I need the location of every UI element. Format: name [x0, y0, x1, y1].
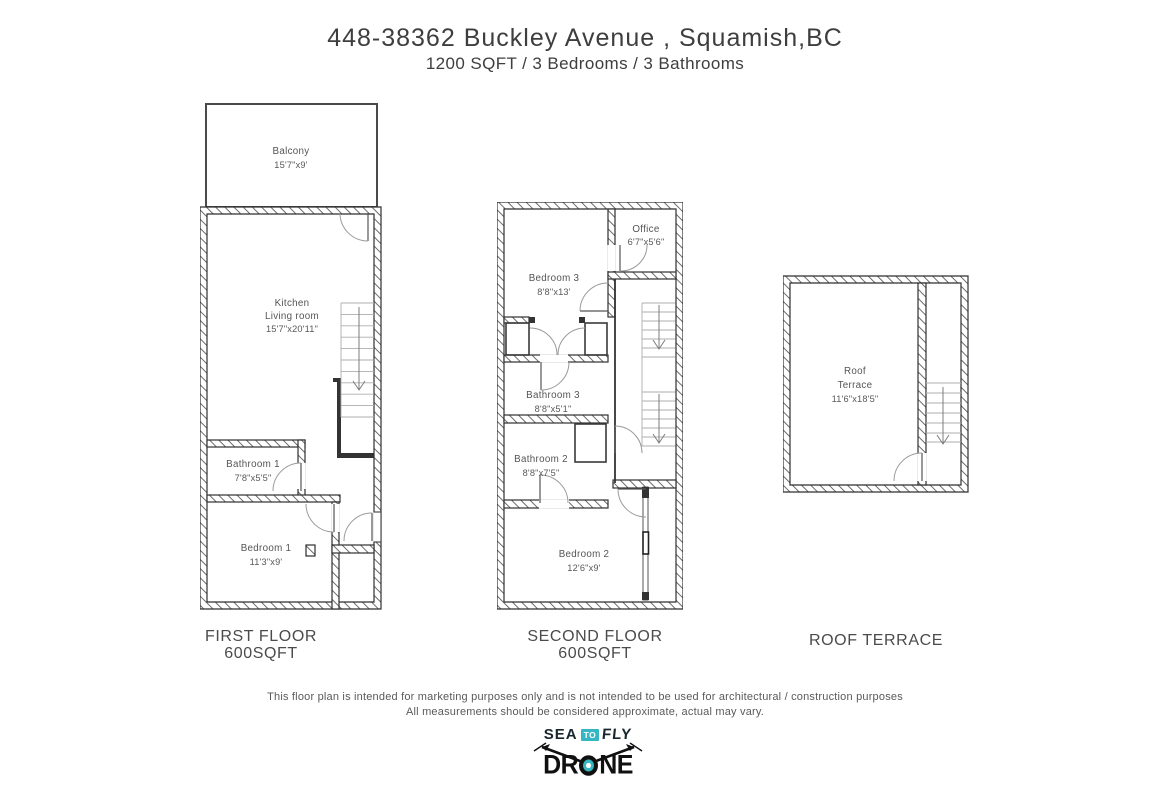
first-floor-stairs-icon [341, 303, 374, 417]
terrace-dims: 11'6"x18'5" [832, 394, 879, 404]
page-title: 448-38362 Buckley Avenue , Squamish,BC [0, 24, 1170, 53]
bedroom1-dims: 11'3"x9' [250, 557, 283, 567]
window-icon [643, 532, 649, 554]
first-floor-caption-line2: 600SQFT [161, 645, 361, 662]
office-dims: 6'7"x5'6" [628, 237, 665, 247]
second-floor-walls [497, 202, 683, 609]
first-floor-doors [273, 213, 372, 541]
bedroom1-label: Bedroom 1 [241, 543, 292, 554]
second-floor-caption: SECOND FLOOR 600SQFT [495, 628, 695, 662]
roof-stairs-icon [926, 383, 961, 444]
page-subtitle: 1200 SQFT / 3 Bedrooms / 3 Bathrooms [0, 54, 1170, 74]
bathroom1-label: Bathroom 1 [226, 459, 280, 470]
bathroom1-dims: 7'8"x5'5" [235, 473, 272, 483]
sea-to-fly-drone-logo: SEA TO FLY DR NE [523, 726, 653, 780]
floor-plan-page: 448-38362 Buckley Avenue , Squamish,BC 1… [0, 0, 1170, 785]
bedroom2-label: Bedroom 2 [559, 549, 610, 560]
living-room-label: Living room [265, 311, 319, 322]
first-floor-caption: FIRST FLOOR 600SQFT [161, 628, 361, 662]
logo-to-badge: TO [581, 729, 600, 741]
stairs-down-arrow-icon [937, 387, 949, 444]
roof-terrace-walls [783, 276, 968, 492]
bedroom2-dims: 12'6"x9' [567, 563, 600, 573]
disclaimer-line2: All measurements should be considered ap… [0, 705, 1170, 720]
logo-drone-row: DR NE [523, 750, 653, 781]
bedroom3-dims: 8'8"x13' [537, 287, 570, 297]
second-floor-stairs-icon [642, 303, 676, 446]
disclaimer-line1: This floor plan is intended for marketin… [0, 690, 1170, 705]
disclaimer: This floor plan is intended for marketin… [0, 690, 1170, 720]
bathroom3-label: Bathroom 3 [526, 390, 580, 401]
bedroom3-label: Bedroom 3 [529, 273, 580, 284]
second-floor-plan: Bedroom 3 8'8"x13' Office 6'7"x5'6" Bath… [497, 202, 683, 612]
logo-drone-left-text: DR [543, 750, 578, 781]
kitchen-dims: 15'7"x20'11" [266, 324, 318, 334]
logo-top-row: SEA TO FLY [523, 726, 653, 743]
roof-label: Roof [844, 366, 866, 377]
bedroom2-wall-window [642, 487, 649, 600]
balcony-label: Balcony [273, 146, 310, 157]
drone-lens-icon [579, 755, 598, 776]
second-floor-caption-line1: SECOND FLOOR [495, 628, 695, 645]
bathroom3-dims: 8'8"x5'1" [535, 404, 572, 414]
roof-terrace-caption-line1: ROOF TERRACE [776, 632, 976, 649]
kitchen-label: Kitchen [275, 298, 310, 309]
bathroom2-dims: 8'8"x7'5" [523, 468, 560, 478]
first-floor-plan: Balcony 15'7"x9' Kitchen Living room 15'… [200, 101, 385, 613]
balcony-dims: 15'7"x9' [274, 160, 307, 170]
logo-sea-text: SEA [544, 726, 578, 743]
logo-fly-text: FLY [601, 726, 633, 743]
roof-terrace-caption: ROOF TERRACE [776, 632, 976, 649]
roof-terrace-plan: Roof Terrace 11'6"x18'5" [783, 275, 969, 493]
office-label: Office [632, 224, 659, 235]
stairs-down-arrow-icon [653, 305, 665, 443]
first-floor-caption-line1: FIRST FLOOR [161, 628, 361, 645]
second-floor-caption-line2: 600SQFT [495, 645, 695, 662]
terrace-label: Terrace [838, 380, 873, 391]
bathroom2-label: Bathroom 2 [514, 454, 568, 465]
logo-drone-right-text: NE [599, 750, 633, 781]
